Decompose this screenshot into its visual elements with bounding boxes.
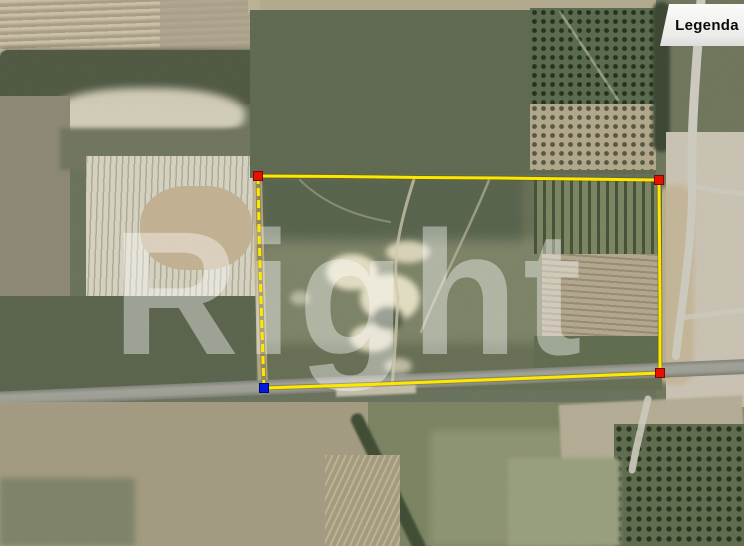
parcel-boundary[interactable] <box>254 172 665 393</box>
vertex-marker-bottom-left[interactable] <box>260 384 269 393</box>
vertex-marker-bottom-right[interactable] <box>656 369 665 378</box>
boundary-line[interactable] <box>258 176 660 388</box>
vertex-marker-top-right[interactable] <box>655 176 664 185</box>
boundary-underlay <box>258 176 660 388</box>
vertex-marker-top-left[interactable] <box>254 172 263 181</box>
parcel-overlay <box>0 0 744 546</box>
legend-panel[interactable]: Legenda <box>660 4 744 46</box>
aerial-satellite-map[interactable]: Right Legenda <box>0 0 744 546</box>
legend-title: Legenda <box>675 17 739 34</box>
